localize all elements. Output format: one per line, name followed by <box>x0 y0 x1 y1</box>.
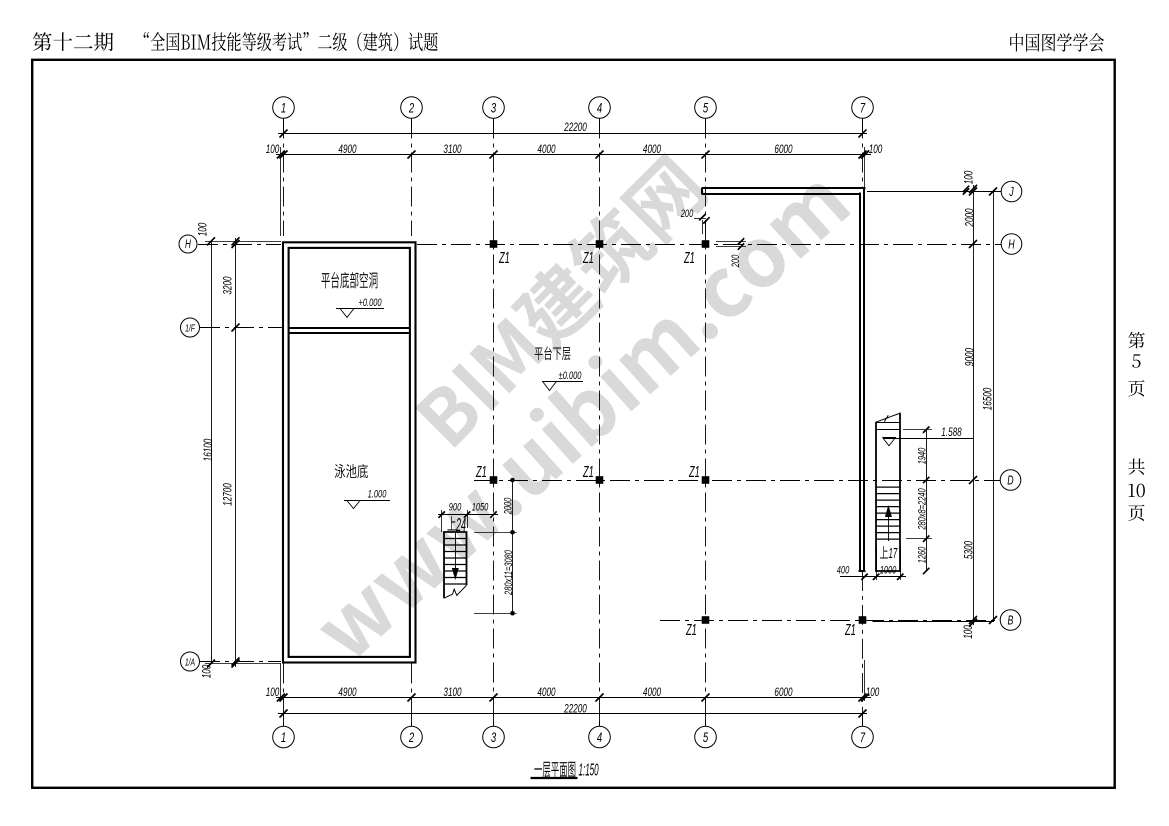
svg-text:3: 3 <box>491 729 497 745</box>
svg-text:H: H <box>1008 238 1015 252</box>
svg-text:400: 400 <box>837 563 850 576</box>
svg-text:Z1: Z1 <box>582 248 594 266</box>
svg-text:4900: 4900 <box>338 687 356 700</box>
svg-text:9000: 9000 <box>964 348 977 366</box>
svg-text:2: 2 <box>408 100 414 116</box>
svg-text:1/A: 1/A <box>185 656 195 668</box>
svg-text:5: 5 <box>703 100 709 116</box>
svg-text:280x8=2240: 280x8=2240 <box>915 488 928 531</box>
svg-text:4000: 4000 <box>537 144 555 157</box>
svg-text:100: 100 <box>266 687 280 700</box>
svg-text:H: H <box>185 239 191 252</box>
svg-text:3200: 3200 <box>222 276 235 294</box>
svg-text:J: J <box>1008 185 1014 199</box>
svg-text:5300: 5300 <box>963 541 976 559</box>
svg-text:6000: 6000 <box>774 687 792 700</box>
svg-text:22200: 22200 <box>563 703 587 716</box>
svg-text:Z1: Z1 <box>498 248 510 266</box>
svg-text:4: 4 <box>597 100 603 116</box>
svg-text:1260: 1260 <box>915 546 928 563</box>
svg-text:16500: 16500 <box>982 387 995 410</box>
svg-text:22200: 22200 <box>563 122 587 135</box>
svg-text:Z1: Z1 <box>683 248 695 266</box>
svg-text:Z1: Z1 <box>685 620 697 638</box>
svg-text:1940: 1940 <box>915 447 928 464</box>
svg-text:3100: 3100 <box>443 687 461 700</box>
svg-text:4900: 4900 <box>338 144 356 157</box>
svg-text:1.588: 1.588 <box>941 427 962 440</box>
svg-text:Z1: Z1 <box>844 620 856 638</box>
svg-text:100: 100 <box>266 144 280 157</box>
svg-text:280x11=3080: 280x11=3080 <box>501 549 514 595</box>
svg-text:Z1: Z1 <box>475 462 487 480</box>
svg-text:Z1: Z1 <box>582 462 594 480</box>
svg-text:100: 100 <box>963 170 976 184</box>
svg-text:200: 200 <box>680 206 694 219</box>
svg-text:3100: 3100 <box>443 144 461 157</box>
svg-text:1: 1 <box>281 100 286 116</box>
svg-text:±0.000: ±0.000 <box>559 368 582 381</box>
svg-text:4000: 4000 <box>643 687 661 700</box>
svg-text:900: 900 <box>449 500 462 513</box>
svg-text:3: 3 <box>491 100 497 116</box>
svg-text:B: B <box>1008 614 1014 628</box>
svg-text:D: D <box>1007 474 1013 488</box>
svg-text:100: 100 <box>197 222 210 236</box>
svg-text:6000: 6000 <box>774 144 792 157</box>
svg-text:4000: 4000 <box>537 687 555 700</box>
svg-text:1/F: 1/F <box>185 322 195 334</box>
svg-text:100: 100 <box>866 687 880 700</box>
svg-text:1050: 1050 <box>472 500 489 513</box>
svg-text:12700: 12700 <box>222 483 235 506</box>
svg-text:2: 2 <box>408 729 414 745</box>
svg-text:+0.000: +0.000 <box>358 295 382 308</box>
svg-text:2000: 2000 <box>501 497 514 515</box>
svg-text:100: 100 <box>201 664 214 678</box>
svg-text:4000: 4000 <box>643 144 661 157</box>
svg-text:2000: 2000 <box>964 208 977 227</box>
svg-text:100: 100 <box>963 625 976 639</box>
svg-text:24: 24 <box>455 516 466 536</box>
svg-text:200: 200 <box>728 254 741 268</box>
svg-text:1:150: 1:150 <box>579 760 599 779</box>
svg-text:1000: 1000 <box>880 563 897 576</box>
svg-text:17: 17 <box>889 546 898 562</box>
svg-text:1.000: 1.000 <box>368 487 387 500</box>
svg-text:100: 100 <box>869 144 883 157</box>
svg-text:16100: 16100 <box>203 438 216 461</box>
svg-text:4: 4 <box>597 729 603 745</box>
svg-text:1: 1 <box>281 729 286 745</box>
svg-text:Z1: Z1 <box>688 462 700 480</box>
svg-text:5: 5 <box>703 729 709 745</box>
